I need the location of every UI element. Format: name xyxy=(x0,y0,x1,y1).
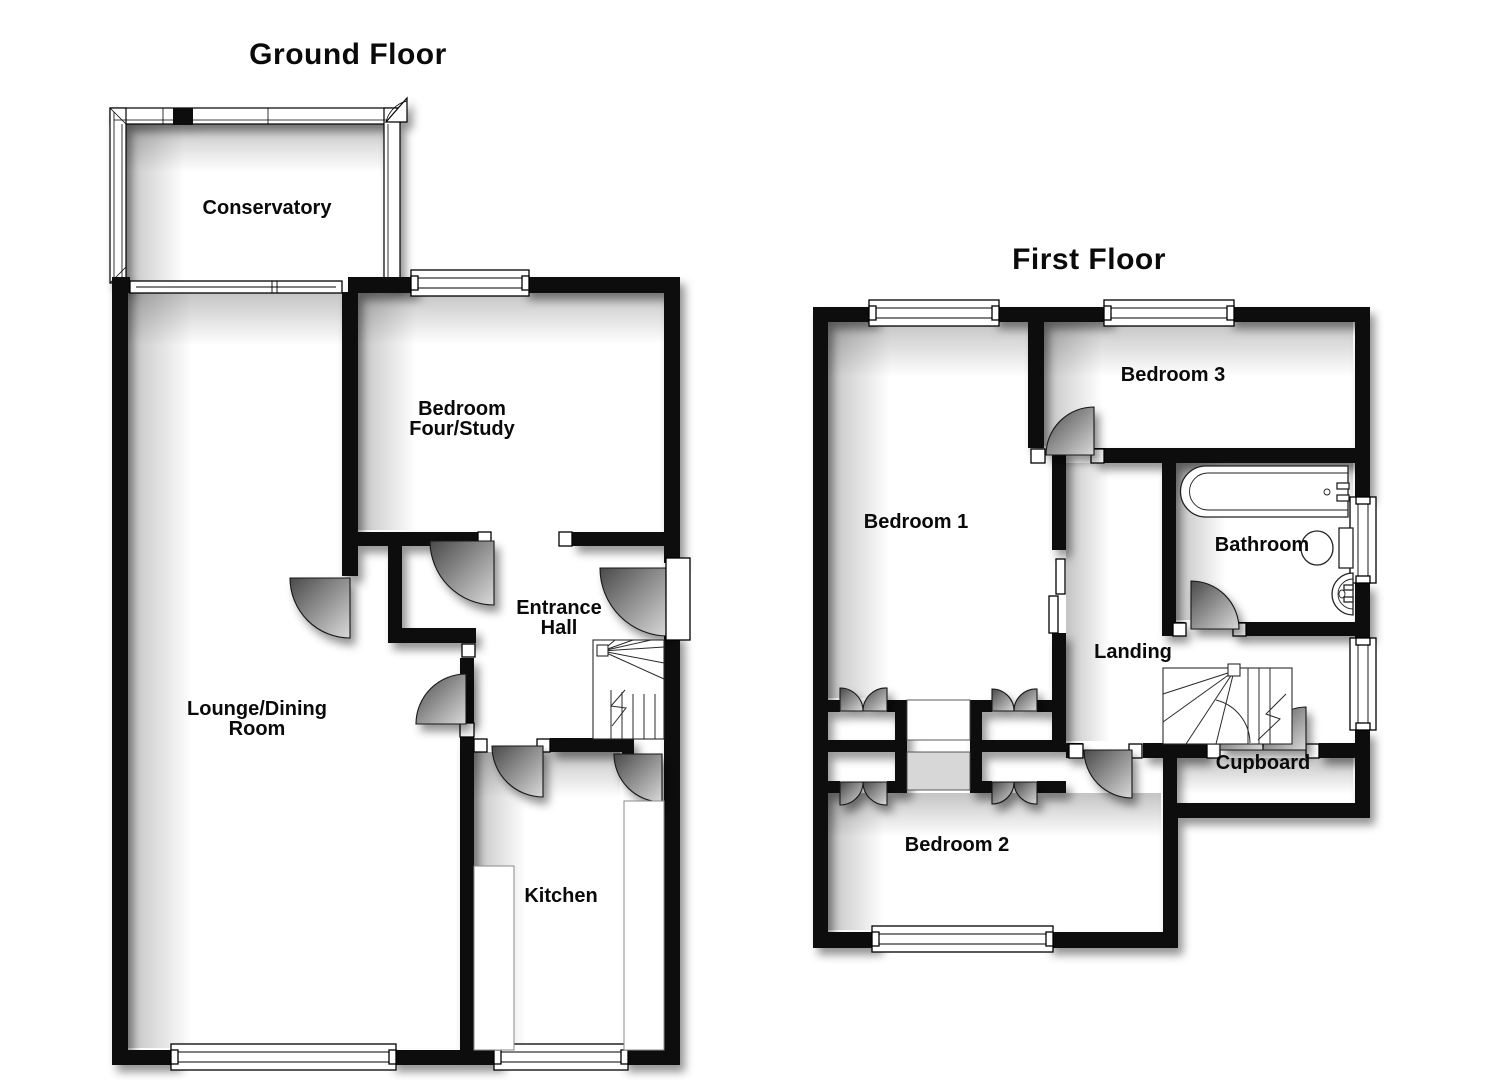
wardrobe-recess-bottom xyxy=(907,752,970,790)
kitchen-rear-door-arc xyxy=(614,754,662,802)
room-label-conservatory: Conservatory xyxy=(203,198,332,218)
bedroom3-window xyxy=(1104,300,1234,326)
ground-staircase-icon xyxy=(593,640,664,739)
bedroom2-window xyxy=(872,926,1053,952)
front-door-arc xyxy=(600,568,668,636)
room-label-kitchen: Kitchen xyxy=(524,886,597,906)
bedroom1-doorway-lining xyxy=(1049,596,1058,633)
patio-doors xyxy=(130,281,342,293)
front-door-frame xyxy=(666,558,690,640)
bedroom-four-window xyxy=(411,270,529,296)
bedroom2-door-arc xyxy=(1084,750,1132,798)
ground-floor-plan xyxy=(110,98,690,1070)
room-label-landing: Landing xyxy=(1094,642,1172,662)
bathroom-door-arc xyxy=(1191,581,1239,629)
lounge-door-arc xyxy=(290,578,350,638)
bathtub-icon xyxy=(1181,466,1349,517)
wardrobe-recess-top xyxy=(907,700,970,740)
conservatory-pillar xyxy=(173,108,193,125)
ground-floor-title: Ground Floor xyxy=(249,38,447,72)
floorplan-page: Ground Floor First Floor Conservatory Be… xyxy=(0,0,1485,1080)
bedroom1-window xyxy=(869,300,999,326)
stairwell-window xyxy=(1350,638,1376,730)
room-label-bedroom-3: Bedroom 3 xyxy=(1121,365,1225,385)
room-label-bedroom-2: Bedroom 2 xyxy=(905,835,1009,855)
room-label-bedroom-1: Bedroom 1 xyxy=(864,512,968,532)
first-floor-title: First Floor xyxy=(1012,243,1166,277)
room-label-cupboard: Cupboard xyxy=(1216,753,1310,773)
room-label-bedroom-four: Bedroom Four/Study xyxy=(409,399,515,439)
wardrobe-door xyxy=(1014,689,1037,711)
wardrobe-door xyxy=(992,689,1014,711)
bedroom-four-door-arc xyxy=(430,541,494,605)
first-staircase-icon xyxy=(1163,664,1292,744)
bedroom1-doorway-lining xyxy=(1056,559,1065,594)
room-label-bathroom: Bathroom xyxy=(1215,535,1309,555)
bathroom-window xyxy=(1350,497,1376,583)
room-label-entrance-hall: Entrance Hall xyxy=(516,598,602,638)
hall-lounge-door-arc xyxy=(416,674,466,724)
sink-icon xyxy=(1332,573,1353,615)
room-label-lounge-dining: Lounge/Dining Room xyxy=(187,699,327,739)
lounge-window xyxy=(171,1044,396,1070)
